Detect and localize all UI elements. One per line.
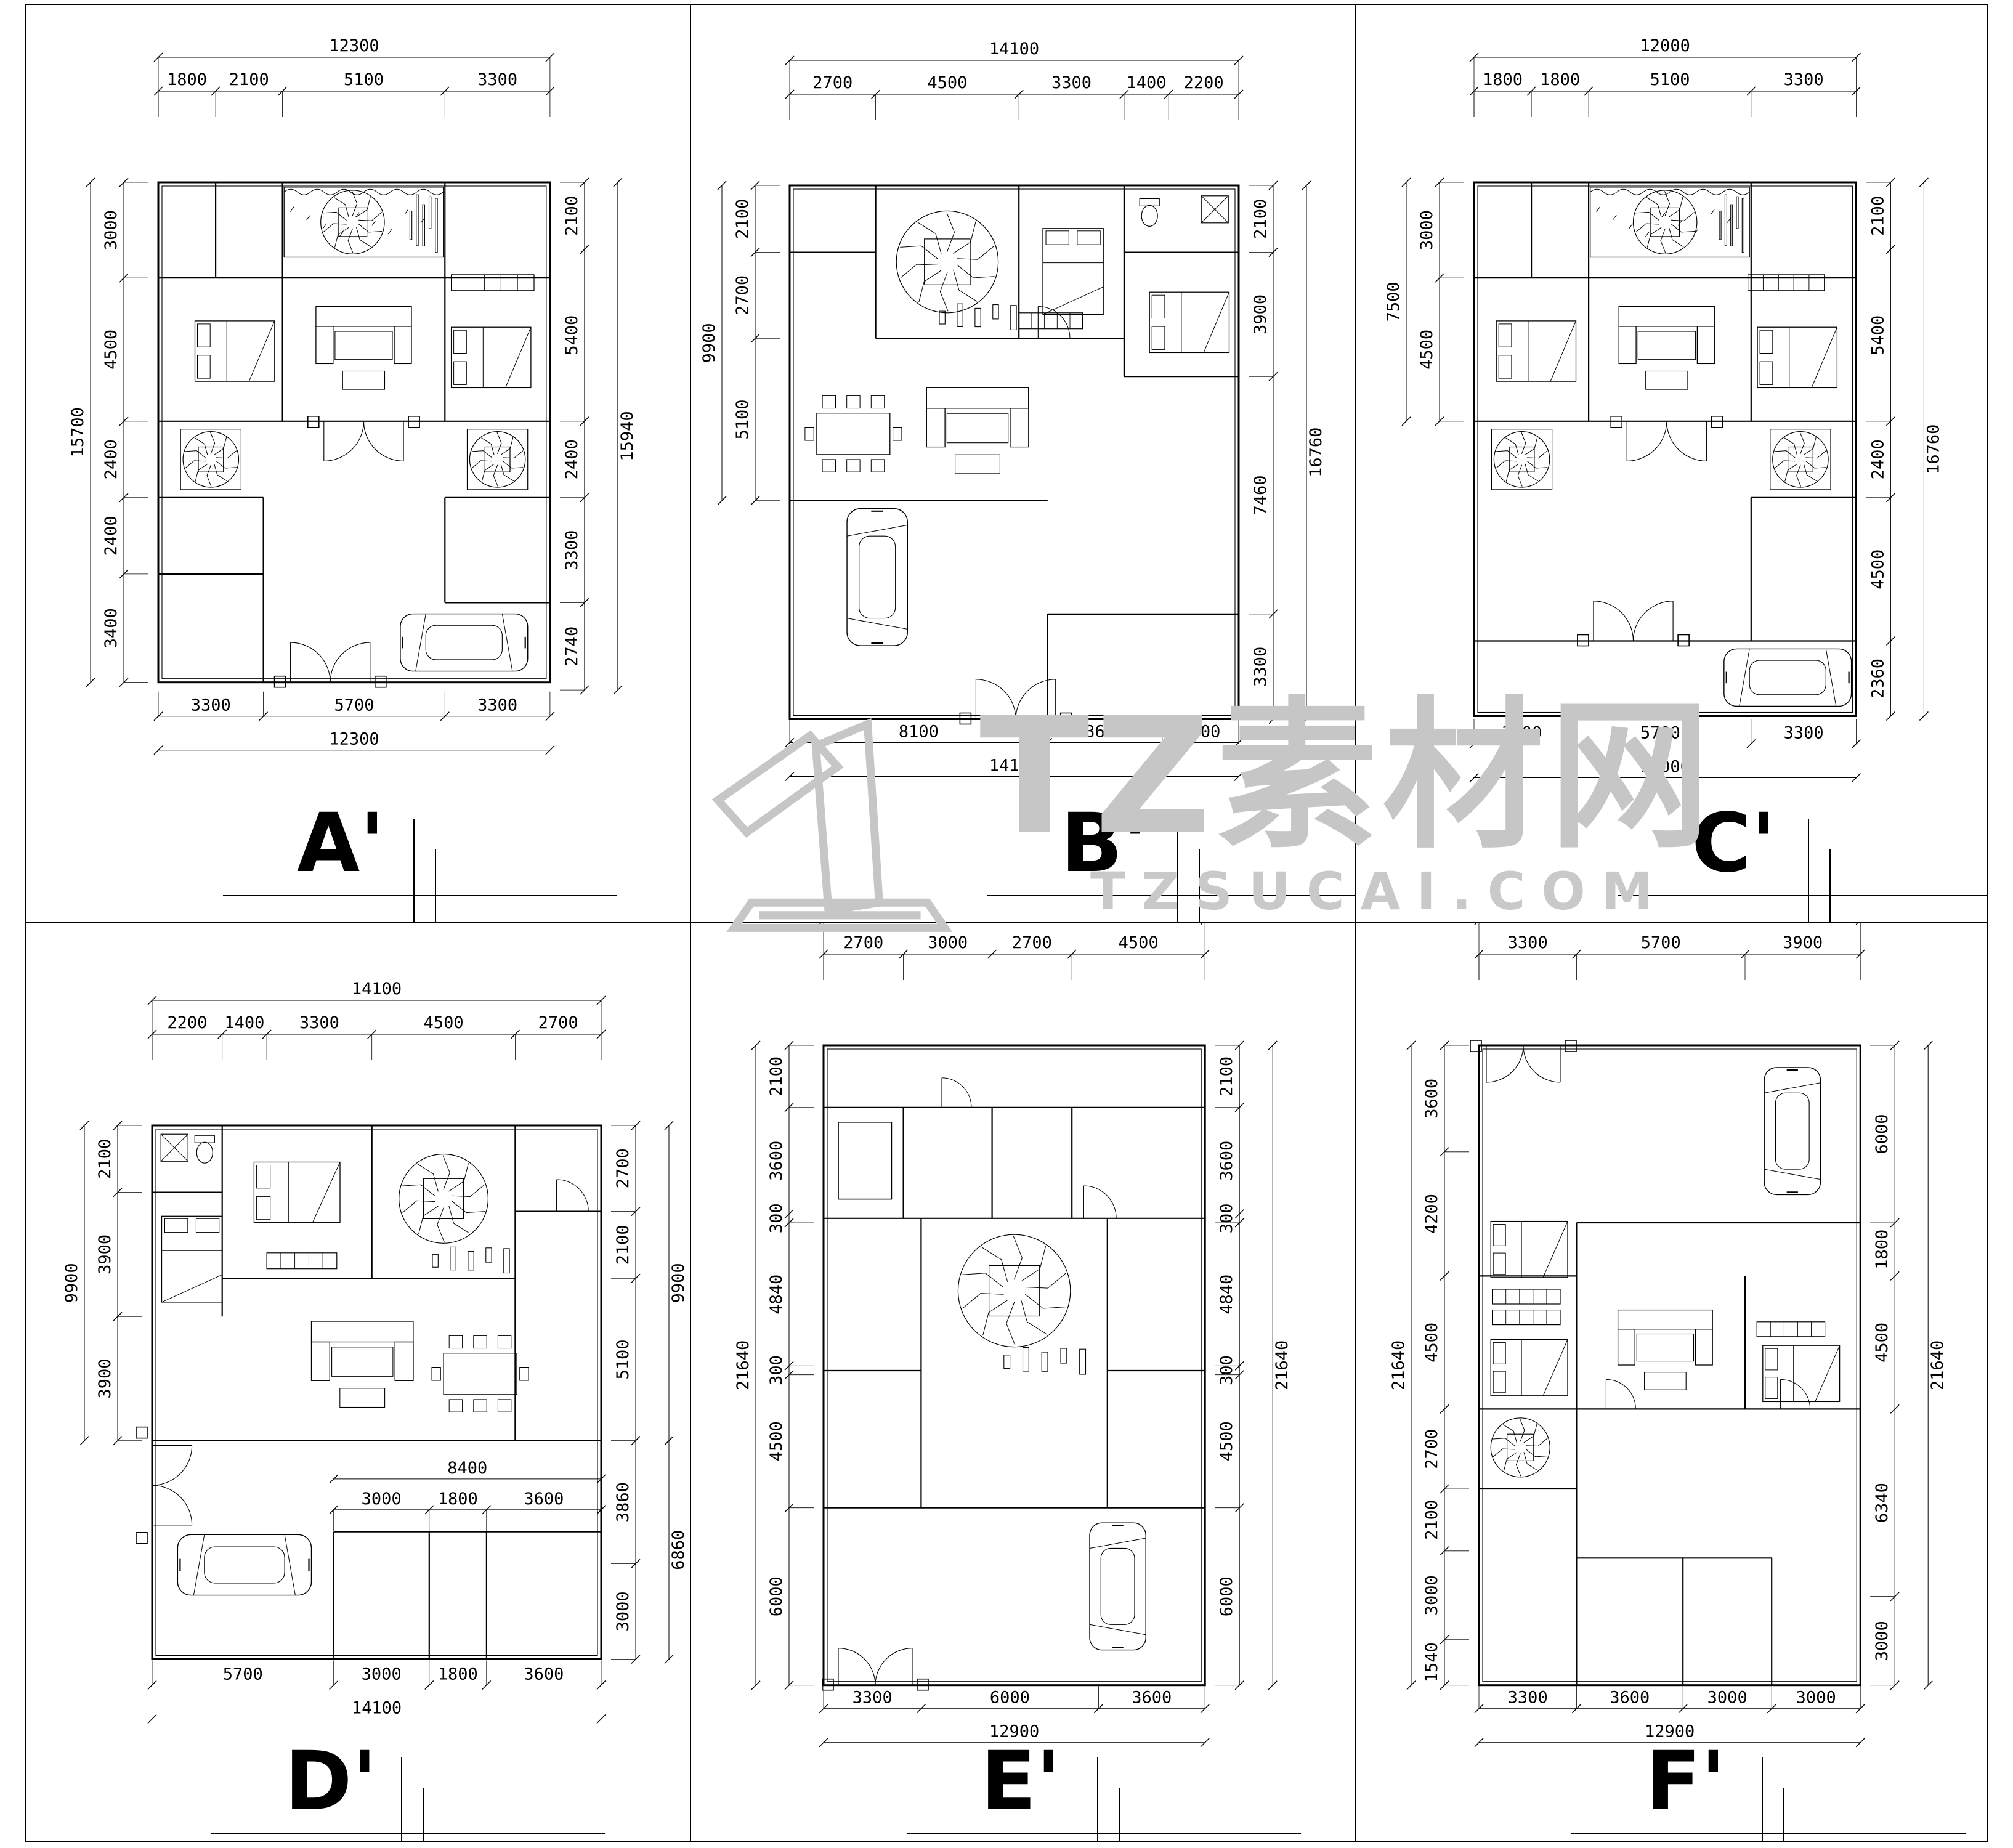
dim-label: 2700 [1012, 933, 1052, 952]
wall-rect [1493, 1310, 1560, 1325]
wall-rect [838, 1122, 891, 1199]
wall-rect [1491, 1222, 1568, 1278]
dim-label: 3000 [1796, 1688, 1836, 1708]
dim-label: 8100 [899, 723, 939, 742]
dim-label: 4500 [1217, 1421, 1236, 1461]
dim-label: 2740 [562, 626, 581, 667]
car-icon [400, 614, 528, 671]
dim-label: 2100 [1217, 1056, 1236, 1096]
wall-rect [435, 198, 437, 253]
toilet-icon [195, 1135, 214, 1163]
wall-line [1764, 1083, 1820, 1093]
dim-label: 2100 [95, 1139, 115, 1179]
wall-rect [1493, 1253, 1505, 1275]
wall-rect [1493, 1343, 1505, 1364]
wall-rect [1493, 1225, 1505, 1246]
wall-rect [1725, 195, 1727, 246]
bed-icon [1763, 1345, 1840, 1401]
wall-rect [162, 1216, 222, 1302]
wall-rect [195, 321, 275, 381]
dim-label: 12300 [329, 730, 379, 749]
wall-rect [1023, 1348, 1029, 1371]
dim-label: 2100 [614, 1225, 633, 1265]
floor-plan-d-svg: 1410022001400330045002700570030001800360… [26, 922, 690, 1842]
dim-label: 2200 [167, 1013, 207, 1032]
wall-rect [316, 307, 411, 326]
plan-outer-wall [1479, 1045, 1860, 1685]
dim-label: 3300 [1784, 70, 1824, 89]
wall-rect [1619, 307, 1714, 326]
wall-rect [498, 1335, 511, 1348]
wall-rect [452, 327, 531, 387]
wall-rect [1742, 198, 1744, 253]
dim-label: 21640 [1389, 1340, 1408, 1390]
wall-rect [332, 1347, 393, 1377]
dim-label: 3600 [1217, 1141, 1236, 1181]
wardrobe-icon [1748, 275, 1825, 291]
shower-icon [1201, 196, 1228, 223]
dim-label: 1800 [438, 1665, 478, 1684]
wall-rect [256, 1165, 270, 1188]
dim-label: 4500 [1422, 1323, 1441, 1363]
dim-label: 4500 [1868, 549, 1887, 590]
gate-double-door-icon [1611, 416, 1722, 461]
dim-label: 4500 [767, 1421, 786, 1461]
floor-plan-f-svg: 1290033005700390033003600300030001290021… [1356, 922, 1988, 1842]
dim-label: 3300 [477, 70, 517, 89]
wall-rect [136, 1533, 147, 1544]
plan-outer-wall-inner [1483, 1049, 1857, 1682]
dim-label: 2100 [1422, 1500, 1441, 1540]
wall-rect [1748, 275, 1825, 291]
inner-room [838, 1122, 891, 1199]
wall-rect [340, 1388, 385, 1408]
dim-label: 300 [1217, 1355, 1236, 1385]
plan-outer-wall-inner [162, 186, 546, 679]
dim-label: 2100 [1868, 196, 1887, 236]
tree-icon [469, 432, 525, 487]
sofa-icon [1618, 1310, 1713, 1390]
dim-label: 2200 [1184, 73, 1224, 92]
dim-label: 2360 [1868, 659, 1887, 699]
drawing-sheet: 1230018002100510033003300570033001230015… [0, 0, 2013, 1848]
dim-label: 16760 [1306, 428, 1326, 477]
wardrobe-icon [1493, 1289, 1560, 1304]
wall-rect [1011, 306, 1016, 330]
wall-line [847, 525, 907, 536]
dim-label: 2700 [843, 933, 883, 952]
bed-icon [254, 1162, 340, 1223]
dim-label: 5400 [562, 315, 581, 355]
section-label-c: C' [1691, 796, 1776, 891]
dim-label: 12000 [1640, 36, 1690, 55]
wall-rect [454, 362, 467, 384]
wall-rect [1507, 1434, 1534, 1461]
wall-rect [847, 460, 860, 472]
dim-label: 9900 [700, 323, 719, 363]
dim-label: 2400 [562, 439, 581, 479]
wall-line [1764, 1169, 1820, 1180]
wall-line [1812, 327, 1837, 387]
wall-line [1629, 224, 1633, 229]
tree-icon [1773, 432, 1828, 487]
floor-plan-b-svg: 1410027004500330014002200810036002400141… [691, 4, 1355, 922]
dim-label: 3860 [614, 1482, 633, 1522]
dim-label: 3900 [1251, 294, 1270, 334]
dim-label: 4500 [1873, 1323, 1892, 1363]
gate-double-door-icon [1470, 1040, 1576, 1082]
dim-label: 9900 [669, 1263, 688, 1303]
dining-table-icon [432, 1335, 529, 1412]
wall-rect [871, 460, 884, 472]
wall-line [1090, 1624, 1146, 1635]
wall-rect [1763, 1345, 1840, 1401]
wall-rect [312, 1342, 330, 1381]
wall-rect [520, 1368, 529, 1381]
dim-label: 21640 [1273, 1340, 1292, 1390]
wall-rect [1765, 1377, 1778, 1399]
car-icon [1090, 1523, 1146, 1650]
plan-outer-wall [824, 1045, 1205, 1685]
wall-rect [926, 387, 1028, 408]
dim-label: 1400 [224, 1013, 264, 1032]
dim-label: 6340 [1873, 1483, 1892, 1523]
wall-line [1815, 1345, 1840, 1401]
wall-rect [450, 1247, 456, 1270]
dim-label: 3300 [1784, 724, 1824, 743]
car-icon [1764, 1068, 1820, 1194]
dim-label: 21640 [1928, 1340, 1947, 1390]
wall-rect [1499, 355, 1512, 378]
wall-rect [416, 195, 418, 246]
dim-label: 2100 [1251, 199, 1270, 239]
wardrobe-icon [452, 275, 534, 291]
wall-rect [1140, 198, 1159, 206]
wardrobe-icon [267, 1253, 337, 1269]
wall-rect [1757, 327, 1837, 387]
plant-bed-icon [284, 187, 444, 257]
wardrobe-icon [1019, 313, 1082, 329]
wall-rect [1736, 197, 1738, 229]
tree-icon [1494, 432, 1549, 487]
wall-rect [486, 1248, 492, 1262]
tree-icon [399, 1154, 488, 1244]
car-icon [1724, 649, 1852, 706]
dim-label: 3300 [1508, 933, 1548, 952]
wall-rect [1697, 326, 1714, 364]
wall-rect [196, 1218, 219, 1232]
dim-label: 4500 [102, 330, 121, 370]
bed-icon [1149, 292, 1229, 352]
dim-label: 4840 [1217, 1275, 1236, 1315]
dim-label: 4500 [927, 73, 967, 92]
panel-plan-f: 1290033005700390033003600300030001290021… [1356, 922, 1988, 1842]
wall-line [193, 1534, 204, 1595]
dim-label: 3600 [767, 1141, 786, 1181]
toilet-icon [1140, 198, 1159, 226]
dim-label: 4200 [1422, 1194, 1441, 1234]
wall-line [1645, 232, 1649, 237]
wall-line [1204, 292, 1229, 352]
dim-label: 2400 [102, 439, 121, 479]
dim-label: 3900 [95, 1234, 115, 1275]
wall-line [285, 1534, 295, 1595]
wall-rect [893, 428, 902, 441]
wall-line [1597, 207, 1600, 212]
plan-outer-wall-inner [793, 189, 1235, 716]
dim-label: 2100 [562, 196, 581, 236]
dim-label: 3600 [1610, 1688, 1650, 1708]
dim-label: 15940 [618, 411, 637, 461]
hatch-bars-icon [1719, 195, 1744, 253]
dim-label: 1800 [1873, 1230, 1892, 1270]
wall-rect [847, 395, 860, 408]
section-label-f: F' [1645, 1734, 1726, 1829]
bed-icon [1496, 321, 1576, 381]
dim-label: 6000 [990, 1688, 1030, 1708]
wall-line [1826, 649, 1836, 706]
wall-line [312, 1162, 340, 1223]
dim-label: 2700 [812, 73, 853, 92]
wall-rect [312, 1321, 413, 1342]
dim-label: 5700 [334, 696, 374, 715]
wall-line [388, 229, 392, 234]
dim-label: 5700 [223, 1665, 263, 1684]
wall-line [249, 321, 274, 381]
wall-rect [254, 1162, 340, 1223]
dim-label: 300 [1217, 1203, 1236, 1233]
wall-rect [805, 428, 814, 441]
wall-rect [1499, 324, 1512, 347]
dim-label: 3000 [1502, 724, 1542, 743]
wall-rect [1010, 408, 1029, 447]
tree-icon [1634, 190, 1697, 254]
door-arc-icon [1083, 1186, 1116, 1218]
panel-plan-b: 1410027004500330014002200810036002400141… [691, 4, 1355, 922]
wall-rect [1152, 295, 1165, 318]
wall-rect [284, 187, 444, 257]
wall-rect [1491, 1340, 1568, 1396]
dim-label: 15700 [68, 407, 87, 457]
wall-rect [1757, 1322, 1825, 1337]
wall-rect [1493, 1289, 1560, 1304]
dim-label: 14100 [989, 756, 1039, 776]
dim-label: 3000 [928, 933, 968, 952]
tree-icon [1491, 1418, 1550, 1477]
wall-rect [822, 395, 835, 408]
dim-label: 3600 [524, 1489, 564, 1509]
dim-label: 2100 [767, 1056, 786, 1096]
wall-rect [444, 1353, 517, 1395]
wall-rect [136, 1427, 147, 1438]
gate-double-door-icon [822, 1648, 928, 1690]
dim-label: 3900 [95, 1358, 115, 1398]
wall-rect [432, 1254, 438, 1267]
wall-rect [1004, 1355, 1010, 1369]
wall-line [1543, 1222, 1568, 1278]
wall-rect [1765, 1348, 1778, 1370]
wall-line [847, 618, 907, 630]
dim-label: 3600 [524, 1665, 564, 1684]
hatch-bars-icon [939, 304, 1016, 330]
bed-icon [1757, 327, 1837, 387]
sofa-icon [1619, 307, 1714, 389]
wall-rect [975, 308, 981, 326]
dim-label: 2700 [538, 1013, 578, 1032]
tree-icon [896, 211, 998, 312]
dim-label: 5100 [733, 399, 752, 439]
panel-plan-c: 1200018001800510033003000570033001200075… [1356, 4, 1988, 922]
gate-double-door-icon [960, 679, 1071, 724]
dim-label: 3300 [299, 1013, 339, 1032]
wall-rect [165, 1218, 188, 1232]
dim-label: 3000 [1417, 210, 1436, 250]
dim-label: 6000 [1873, 1114, 1892, 1154]
dim-label: 7460 [1251, 475, 1270, 515]
wardrobe-icon [1757, 1322, 1825, 1337]
wall-rect [198, 447, 224, 472]
hatch-bars-icon [1004, 1348, 1086, 1374]
dim-label: 5100 [1650, 70, 1690, 89]
dim-label: 3900 [1783, 933, 1823, 952]
dim-label: 6000 [767, 1576, 786, 1616]
wall-line [1727, 218, 1731, 223]
dim-label: 9900 [62, 1263, 81, 1303]
dim-label: 3000 [614, 1591, 633, 1631]
floor-plan-e-svg: 1290027003000270045003300600036001290021… [691, 922, 1355, 1842]
wall-rect [267, 1253, 337, 1269]
wall-rect [1646, 371, 1688, 390]
dim-label: 3600 [1132, 1688, 1172, 1708]
wall-rect [474, 1335, 487, 1348]
wall-line [1740, 649, 1750, 706]
section-label-e: E' [981, 1734, 1061, 1829]
wall-rect [1491, 429, 1552, 490]
dim-label: 3300 [1508, 1688, 1548, 1708]
dining-table-icon [805, 395, 902, 472]
dim-label: 4500 [424, 1013, 464, 1032]
dim-label: 3000 [1873, 1621, 1892, 1661]
wall-rect [926, 408, 945, 447]
section-label-a: A' [297, 796, 385, 891]
dim-label: 4500 [1119, 933, 1159, 952]
door-arc-icon [1781, 1379, 1810, 1409]
wall-rect [1731, 205, 1733, 246]
wall-line [1543, 1340, 1568, 1396]
wall-rect [1496, 321, 1576, 381]
wall-rect [394, 326, 411, 364]
dim-label: 21640 [734, 1340, 753, 1390]
wall-rect [1077, 231, 1100, 245]
door-arc-icon [1606, 1379, 1635, 1409]
dim-label: 6000 [1217, 1576, 1236, 1616]
dim-label: 5400 [1868, 315, 1887, 355]
dim-label: 16760 [1924, 424, 1943, 474]
wall-rect [1019, 313, 1082, 329]
floor-plan-c-svg: 1200018001800510033003000570033001200075… [1356, 4, 1988, 922]
wall-line [290, 207, 294, 212]
dim-label: 3000 [362, 1489, 402, 1509]
wall-rect [198, 324, 211, 347]
dim-label: 3000 [1422, 1575, 1441, 1615]
wall-rect [1770, 429, 1831, 490]
wall-rect [395, 1342, 413, 1381]
car-icon [847, 509, 907, 646]
section-label-d: D' [285, 1734, 377, 1829]
dim-label: 5100 [344, 70, 384, 89]
dim-label: 5100 [614, 1339, 633, 1379]
wall-rect [1760, 330, 1773, 353]
wall-rect [429, 197, 431, 229]
wall-rect [449, 1400, 462, 1412]
panel-plan-a: 1230018002100510033003300570033001230015… [26, 4, 690, 922]
wall-rect [1651, 208, 1680, 237]
wall-rect [504, 1249, 509, 1273]
wall-rect [468, 429, 528, 490]
wall-rect [342, 371, 384, 390]
wall-rect [485, 447, 510, 472]
wall-rect [1719, 211, 1721, 240]
wall-line [502, 614, 512, 671]
dim-label: 3000 [102, 210, 121, 250]
gate-double-door-icon [136, 1427, 192, 1544]
wall-line [307, 215, 310, 220]
dim-label: 12000 [1640, 758, 1690, 777]
wall-rect [474, 1400, 487, 1412]
hatch-bars-icon [432, 1247, 509, 1273]
section-label-b: B' [1061, 796, 1148, 891]
tree-icon [958, 1234, 1070, 1347]
bed-icon [195, 321, 275, 381]
sofa-icon [316, 307, 411, 389]
door-arc-icon [942, 1078, 971, 1108]
wall-rect [256, 1196, 270, 1219]
shower-icon [161, 1134, 188, 1161]
wall-rect [1760, 362, 1773, 384]
plant-bed-icon [1590, 187, 1750, 257]
wall-rect [947, 413, 1008, 443]
panel-plan-e: 1290027003000270045003300600036001290021… [691, 922, 1355, 1842]
wall-rect [1696, 1329, 1713, 1365]
wall-line [1613, 215, 1616, 220]
dim-label: 5700 [1640, 724, 1680, 743]
gate-double-door-icon [1578, 601, 1689, 646]
wall-line [1550, 321, 1576, 381]
dim-label: 2400 [1180, 723, 1220, 742]
wall-rect [1043, 229, 1103, 315]
wall-rect [198, 355, 211, 378]
hatch-bars-icon [410, 195, 437, 253]
wall-rect [1618, 1329, 1635, 1365]
sofa-icon [926, 387, 1029, 474]
wall-rect [410, 211, 411, 240]
dim-label: 3000 [362, 1665, 402, 1684]
wall-rect [1618, 1310, 1713, 1329]
bed-icon [1491, 1340, 1568, 1396]
wall-rect [180, 429, 241, 490]
dim-label: 14100 [352, 1699, 402, 1718]
dim-label: 1800 [1540, 70, 1580, 89]
plan-outer-wall-inner [827, 1049, 1201, 1682]
gate-double-door-icon [275, 642, 386, 687]
dim-label: 1800 [1483, 70, 1523, 89]
floor-plan-a-svg: 1230018002100510033003300570033001230015… [26, 4, 690, 922]
dim-label: 3300 [1251, 647, 1270, 687]
dim-label: 300 [767, 1355, 786, 1385]
bed-icon [1043, 229, 1103, 315]
wall-rect [822, 460, 835, 472]
wall-line [372, 221, 376, 225]
